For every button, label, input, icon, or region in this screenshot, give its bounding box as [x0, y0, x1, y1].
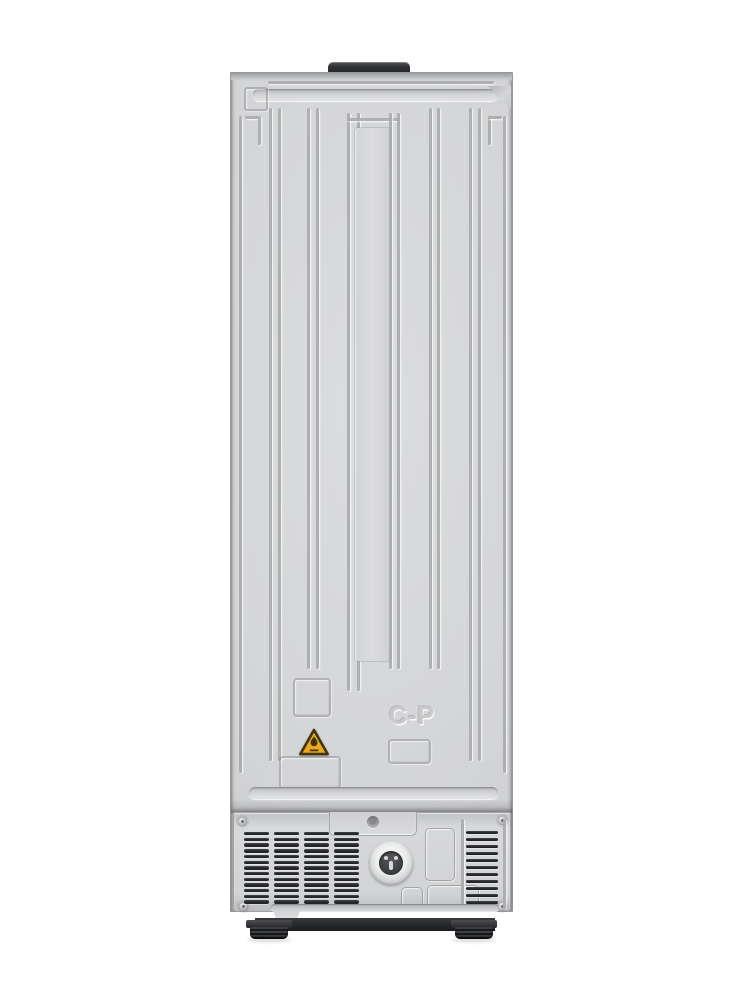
top-channel-emboss — [253, 89, 498, 101]
valve-hole — [384, 856, 388, 860]
panel-rib-hook — [488, 116, 502, 119]
vent-slat — [304, 849, 329, 852]
vent-slat — [466, 894, 498, 897]
vent-slat — [334, 861, 359, 864]
vent-slat — [244, 861, 269, 864]
vent-slat — [304, 838, 329, 841]
vent-slat — [334, 849, 359, 852]
center-raised-panel — [355, 128, 391, 661]
panel-rib — [278, 108, 281, 761]
vent-slat — [304, 872, 329, 875]
vent-slat — [274, 889, 299, 892]
warning-label — [299, 728, 329, 756]
vent-slat — [466, 859, 498, 862]
emboss-rect-center — [388, 739, 431, 764]
vent-slat — [244, 889, 269, 892]
vent-slat — [466, 838, 498, 841]
vent-slat — [334, 889, 359, 892]
vent-slat — [466, 845, 498, 848]
panel-rib — [469, 108, 472, 761]
foot-shadow — [452, 938, 496, 942]
vent-slat — [304, 889, 329, 892]
panel-rib — [478, 108, 481, 761]
vent-slat — [244, 849, 269, 852]
vent-slat — [244, 872, 269, 875]
emboss-rect-left — [279, 756, 341, 789]
vent-slat — [274, 866, 299, 869]
vent-slat — [466, 866, 498, 869]
vent-slat — [244, 895, 269, 898]
panel-rib — [268, 81, 494, 84]
vent-slat — [274, 838, 299, 841]
vent-slat — [244, 878, 269, 881]
panel-rib-hook — [488, 116, 491, 145]
vent-slat — [244, 866, 269, 869]
tab-screw-hole — [367, 816, 379, 828]
vent-slat — [274, 883, 299, 886]
vent-slat — [304, 883, 329, 886]
vent-slat — [334, 872, 359, 875]
panel-rib — [503, 116, 506, 773]
vent-slat — [466, 831, 498, 834]
panel-rib — [437, 108, 440, 669]
top-edge-shading — [231, 73, 512, 81]
refrigerator-rear-view: C-P — [230, 62, 513, 938]
vent-slat — [274, 872, 299, 875]
vent-slat — [244, 900, 269, 903]
vent-column — [274, 832, 299, 904]
drain-valve-center — [379, 851, 403, 875]
vent-slat — [244, 855, 269, 858]
vent-slat — [274, 895, 299, 898]
panel-rib — [397, 113, 400, 669]
vent-slat — [274, 878, 299, 881]
vent-slat — [244, 883, 269, 886]
panel-rib — [429, 108, 432, 669]
vent-slat — [304, 878, 329, 881]
valve-slot — [389, 861, 393, 870]
vent-slat — [334, 843, 359, 846]
panel-rib — [389, 113, 392, 669]
vent-slat — [304, 861, 329, 864]
vent-slat — [274, 855, 299, 858]
compressor-vent-cover — [233, 812, 511, 912]
vent-emboss-rect-tall — [425, 828, 455, 881]
panel-rib — [316, 108, 319, 669]
embossed-model-text: C-P — [379, 702, 445, 731]
screw — [238, 817, 247, 826]
foot-left — [246, 920, 292, 940]
vent-slat — [304, 866, 329, 869]
panel-rib-hook — [245, 116, 259, 119]
vent-slat — [304, 855, 329, 858]
vent-slat — [304, 832, 329, 835]
vent-slat — [466, 887, 498, 890]
vent-slat — [274, 861, 299, 864]
panel-rib — [347, 113, 350, 691]
vent-column — [334, 832, 359, 904]
foot-shadow — [247, 938, 291, 942]
bottom-recess-shadow — [231, 799, 512, 813]
vent-slat — [244, 838, 269, 841]
corner-emboss-square — [244, 87, 268, 111]
panel-rib — [239, 116, 242, 773]
vent-slat — [274, 832, 299, 835]
vent-slat — [334, 866, 359, 869]
panel-rib — [269, 108, 272, 761]
vent-grille-left — [244, 832, 359, 904]
vent-slat — [244, 832, 269, 835]
vent-slat — [334, 895, 359, 898]
panel-rib — [307, 108, 310, 669]
vent-slat — [334, 883, 359, 886]
vent-slat — [466, 880, 498, 883]
vent-slat — [274, 849, 299, 852]
vent-grille-right — [466, 831, 498, 904]
vent-slat — [334, 878, 359, 881]
vent-slat — [334, 832, 359, 835]
product-photo-background: C-P — [0, 0, 743, 1000]
vent-slat — [334, 838, 359, 841]
flame-warning-icon — [299, 728, 329, 756]
panel-rib-crossbar — [347, 118, 400, 121]
vent-slat — [274, 843, 299, 846]
panel-rib-hook — [258, 116, 261, 145]
vent-column — [244, 832, 269, 904]
vent-slat — [466, 873, 498, 876]
vent-column — [304, 832, 329, 904]
bottom-channel-emboss — [249, 787, 498, 799]
vent-slat — [304, 895, 329, 898]
vent-slat — [334, 855, 359, 858]
drain-valve — [369, 841, 413, 885]
emboss-square — [293, 678, 331, 717]
valve-hole — [394, 856, 398, 860]
vent-slat — [304, 843, 329, 846]
vent-groove — [461, 819, 464, 909]
back-panel: C-P — [230, 72, 513, 912]
vent-groove — [503, 819, 506, 909]
vent-bottom-groove — [271, 904, 499, 911]
vent-slat — [244, 843, 269, 846]
vent-column — [466, 831, 498, 904]
foot-right — [451, 920, 497, 940]
vent-slat — [466, 852, 498, 855]
